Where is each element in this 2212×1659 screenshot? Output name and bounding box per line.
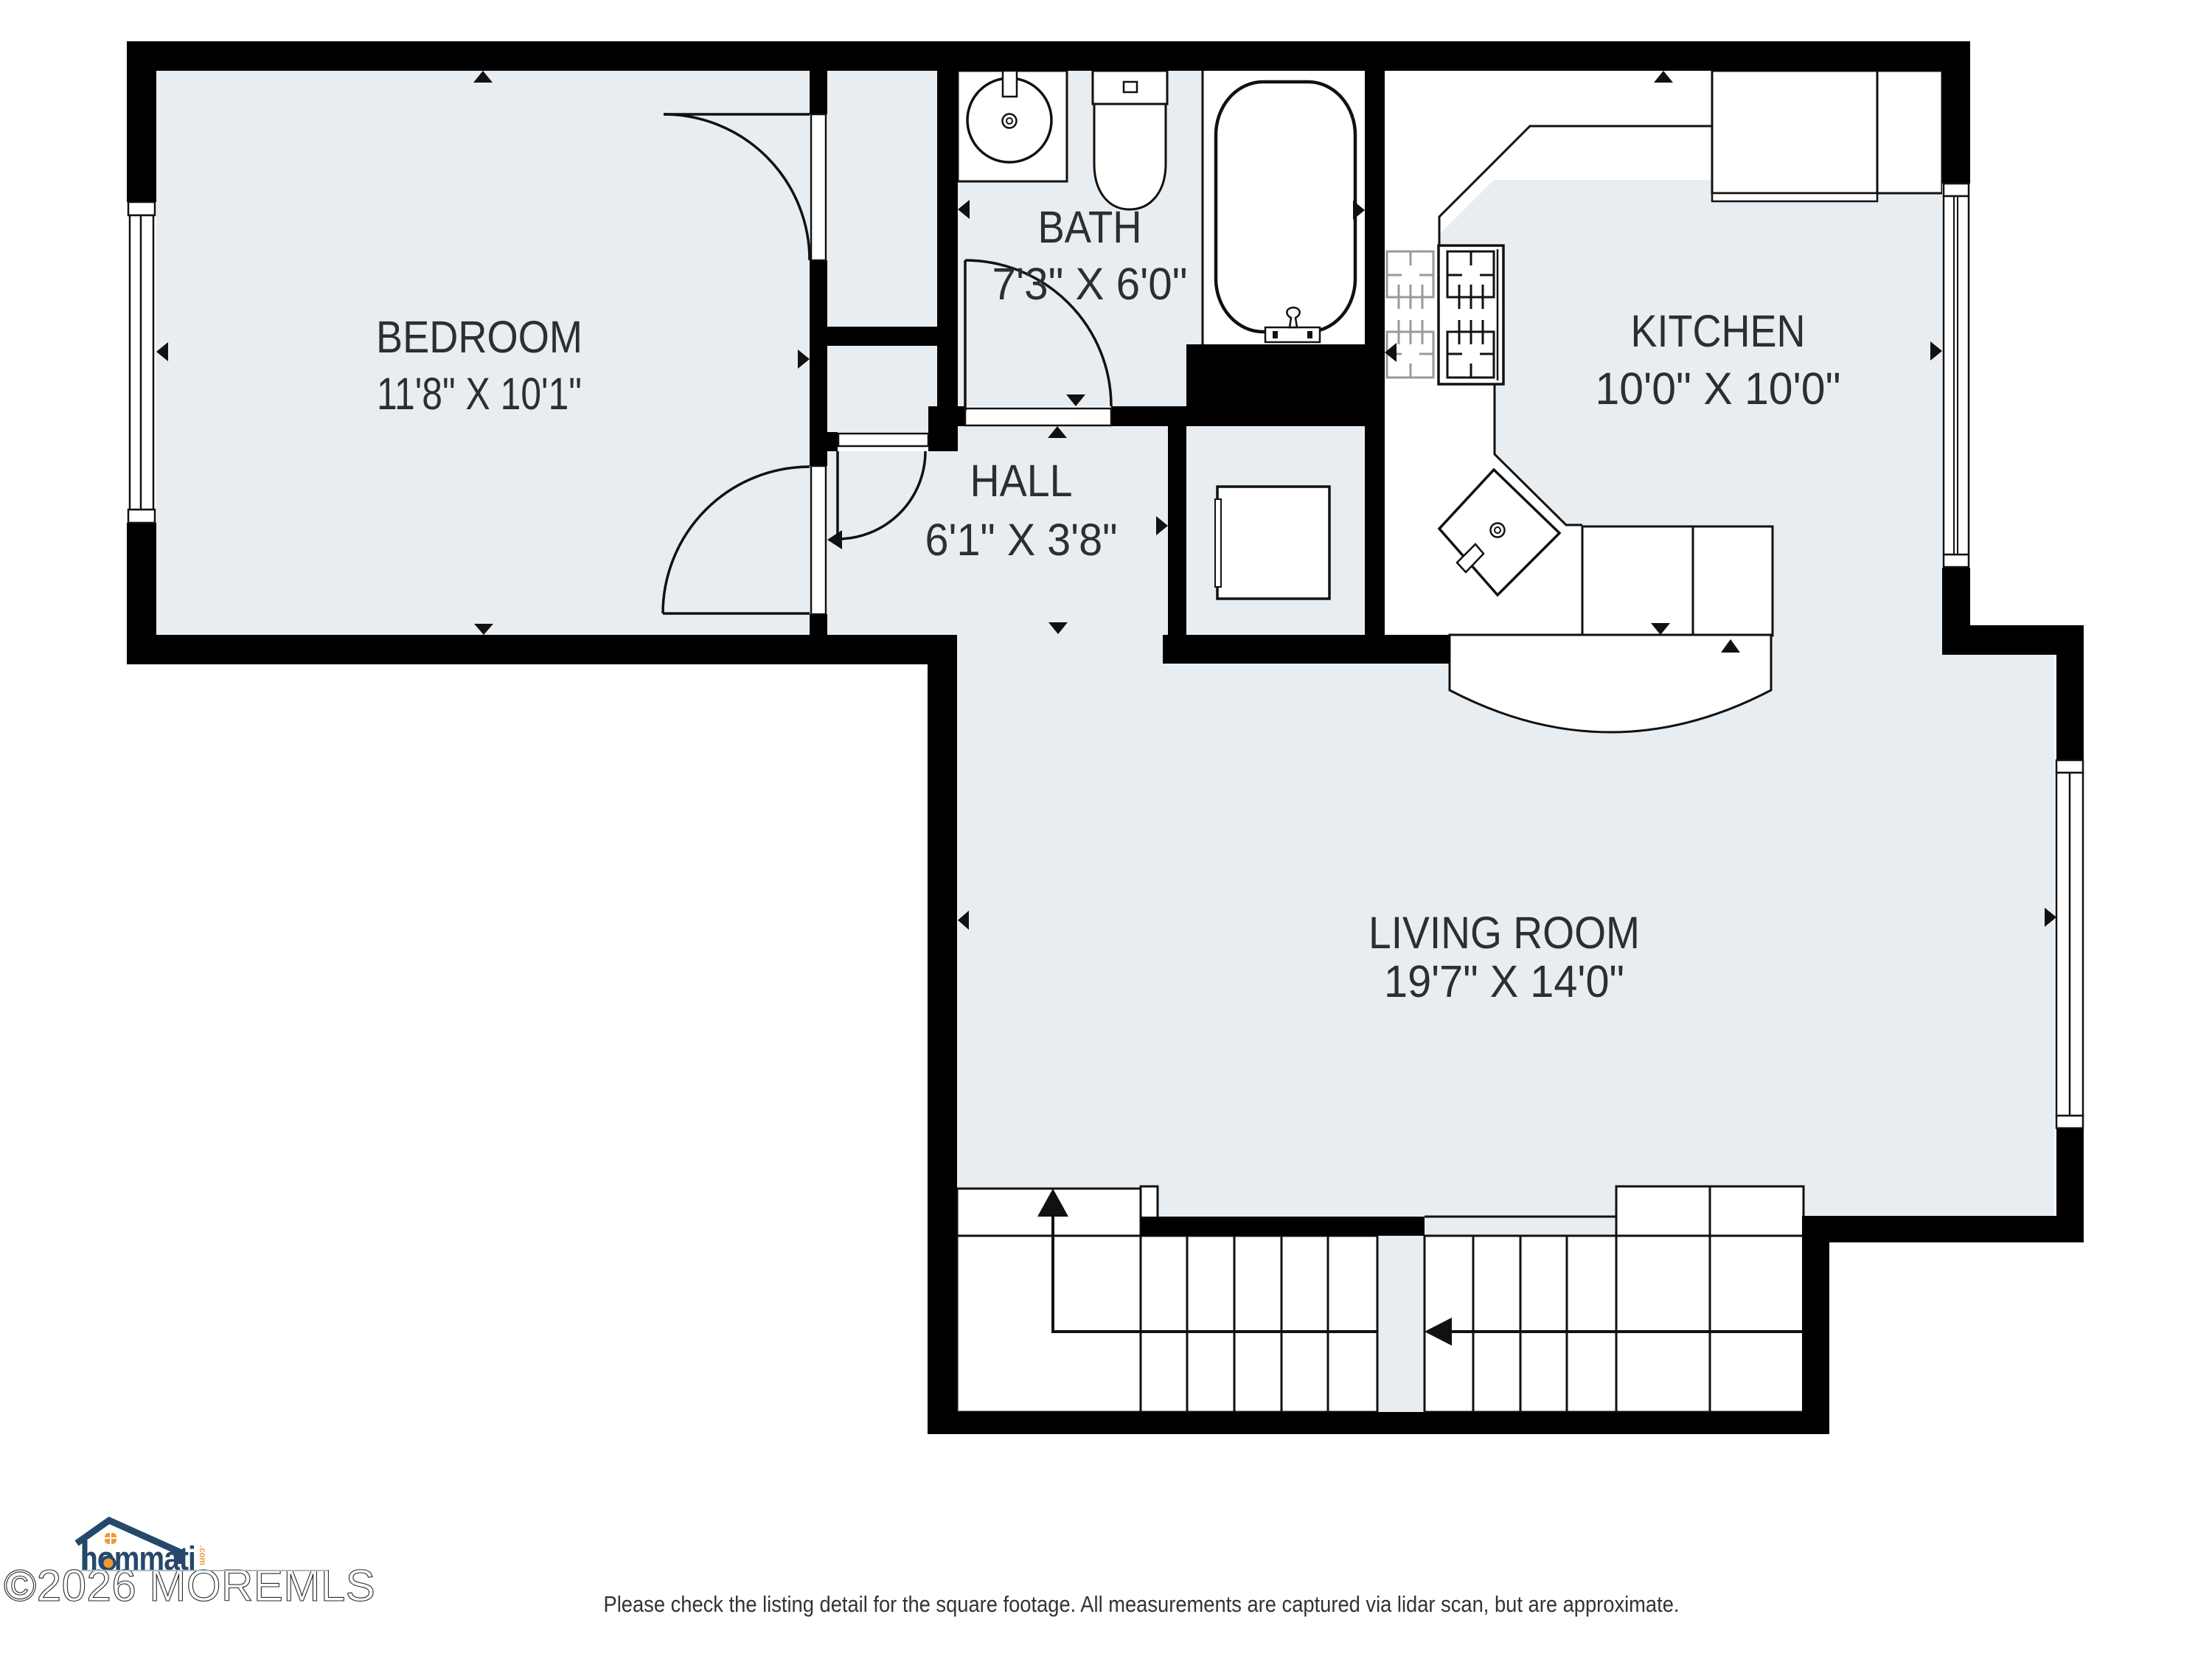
svg-text:11'8" X 10'1": 11'8" X 10'1" bbox=[377, 369, 582, 419]
svg-text:BATH: BATH bbox=[1038, 202, 1142, 252]
svg-text:6'1" X 3'8": 6'1" X 3'8" bbox=[925, 515, 1118, 565]
svg-text:19'7" X 14'0": 19'7" X 14'0" bbox=[1384, 956, 1624, 1006]
svg-text:.com: .com bbox=[198, 1545, 206, 1565]
svg-text:hommati: hommati bbox=[80, 1540, 195, 1577]
svg-text:HALL: HALL bbox=[970, 456, 1073, 506]
svg-text:BEDROOM: BEDROOM bbox=[376, 312, 582, 362]
svg-text:Please check the listing detai: Please check the listing detail for the … bbox=[604, 1591, 1680, 1617]
svg-text:LIVING ROOM: LIVING ROOM bbox=[1368, 908, 1640, 958]
svg-text:KITCHEN: KITCHEN bbox=[1631, 306, 1806, 356]
svg-text:7'3" X 6'0": 7'3" X 6'0" bbox=[992, 259, 1188, 309]
svg-text:10'0" X 10'0": 10'0" X 10'0" bbox=[1596, 364, 1841, 414]
